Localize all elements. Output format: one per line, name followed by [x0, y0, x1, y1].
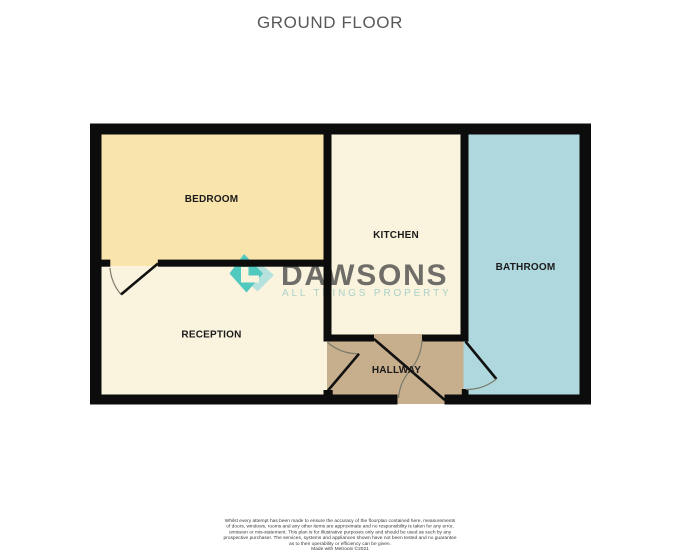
svg-text:RECEPTION: RECEPTION: [181, 330, 241, 341]
svg-text:BATHROOM: BATHROOM: [496, 262, 556, 273]
svg-text:omission or mis-statement. Thi: omission or mis-statement. This plan is …: [229, 529, 452, 535]
svg-text:prospective purchaser. The ser: prospective purchaser. The services, sys…: [223, 535, 456, 541]
svg-text:HALLWAY: HALLWAY: [372, 365, 421, 376]
svg-text:ALL THINGS PROPERTY: ALL THINGS PROPERTY: [282, 288, 452, 299]
svg-text:GROUND FLOOR: GROUND FLOOR: [257, 13, 403, 32]
svg-text:of doors, windows, rooms and a: of doors, windows, rooms and any other i…: [226, 524, 454, 530]
svg-text:KITCHEN: KITCHEN: [373, 230, 419, 241]
svg-text:as to their operability or eff: as to their operability or efficiency ca…: [289, 541, 391, 547]
svg-text:BEDROOM: BEDROOM: [185, 194, 239, 205]
svg-text:Whilst every attempt has been: Whilst every attempt has been made to en…: [225, 518, 456, 524]
